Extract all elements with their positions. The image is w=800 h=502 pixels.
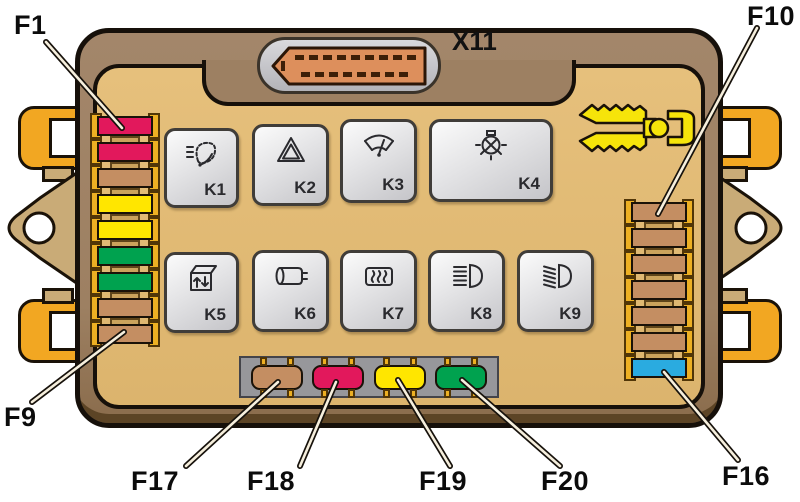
relay-label: K5 xyxy=(204,305,226,325)
bottom-fuse-2-crimson xyxy=(312,365,364,390)
fuse-pin xyxy=(471,389,478,398)
fuse-pin xyxy=(321,389,328,398)
relay-label: K2 xyxy=(294,178,316,198)
label-f1: F1 xyxy=(14,10,47,41)
fuse-pin xyxy=(348,357,355,366)
fuse-box-diagram: X11 K1K2K3K4K5K6K7K8K9 F1 F9 F10 F16 F17… xyxy=(0,0,800,502)
mount-step xyxy=(42,288,74,304)
mount-clip-bottom-right xyxy=(720,299,782,363)
fuse-tan xyxy=(631,228,687,248)
mount-hole xyxy=(736,213,766,243)
fuse-puller-icon xyxy=(576,99,701,157)
relay-label: K1 xyxy=(204,180,226,200)
connector-x11 xyxy=(257,37,441,94)
right-fuse-column xyxy=(624,202,694,384)
relay-k4: K4 xyxy=(429,119,553,202)
relay-k9: K9 xyxy=(517,250,594,332)
right-fuse-slot-3 xyxy=(624,254,694,274)
power-window-icon xyxy=(167,262,236,294)
high-beam-icon xyxy=(431,260,502,292)
hazard-warning-icon xyxy=(255,134,326,166)
bottom-fuse-1-tan xyxy=(251,365,303,390)
fuse-tan xyxy=(97,168,153,188)
left-fuse-slot-3 xyxy=(90,168,160,188)
fuse-pin xyxy=(260,357,267,366)
relay-k3: K3 xyxy=(340,119,417,203)
left-fuse-slot-2 xyxy=(90,142,160,162)
relay-k7: K7 xyxy=(340,250,417,332)
right-fuse-slot-7 xyxy=(624,358,694,378)
fuse-tan xyxy=(97,324,153,344)
label-f9: F9 xyxy=(4,402,37,433)
fuse-yellow xyxy=(97,220,153,240)
relay-label: K8 xyxy=(470,304,492,324)
fuse-tan xyxy=(631,280,687,300)
fuse-tan xyxy=(631,202,687,222)
fuse-green xyxy=(97,246,153,266)
horn-icon xyxy=(255,260,326,292)
relay-label: K4 xyxy=(518,174,540,194)
relay-k8: K8 xyxy=(428,250,505,332)
left-fuse-column xyxy=(90,116,160,350)
right-fuse-slot-6 xyxy=(624,332,694,352)
left-fuse-slot-7 xyxy=(90,272,160,292)
fuse-crimson xyxy=(97,142,153,162)
relay-k6: K6 xyxy=(252,250,329,332)
relay-label: K7 xyxy=(382,304,404,324)
right-fuse-slot-5 xyxy=(624,306,694,326)
mount-clip-top-left xyxy=(18,106,80,170)
bottom-fuse-row xyxy=(239,356,499,398)
label-f17: F17 xyxy=(131,466,179,497)
bottom-fuse-4-green xyxy=(435,365,487,390)
left-fuse-slot-6 xyxy=(90,246,160,266)
fuse-pin xyxy=(383,357,390,366)
fuse-pin xyxy=(260,389,267,398)
connector-x11-plug xyxy=(267,45,431,87)
label-f18: F18 xyxy=(247,466,295,497)
fuse-yellow xyxy=(97,194,153,214)
fuse-tan xyxy=(631,306,687,326)
heated-rear-window-icon xyxy=(343,260,414,292)
fuse-pin xyxy=(287,389,294,398)
bulb-check-icon xyxy=(432,129,550,161)
fuse-pin xyxy=(410,357,417,366)
label-f10: F10 xyxy=(747,1,795,32)
relay-label: K3 xyxy=(382,175,404,195)
windshield-wiper-icon xyxy=(343,129,414,161)
left-fuse-slot-1 xyxy=(90,116,160,136)
right-fuse-slot-2 xyxy=(624,228,694,248)
fuse-tan xyxy=(97,298,153,318)
label-f19: F19 xyxy=(419,466,467,497)
fuse-pin xyxy=(321,357,328,366)
bottom-fuse-3-yellow xyxy=(374,365,426,390)
headlight-washer-icon xyxy=(167,138,236,170)
left-fuse-slot-4 xyxy=(90,194,160,214)
low-beam-icon xyxy=(520,260,591,292)
fuse-pin xyxy=(287,357,294,366)
left-fuse-slot-8 xyxy=(90,298,160,318)
relay-label: K9 xyxy=(559,304,581,324)
mount-ear-left xyxy=(6,170,78,286)
connector-x11-label: X11 xyxy=(452,26,497,57)
fuse-pin xyxy=(410,389,417,398)
fuse-pin xyxy=(444,389,451,398)
fuse-tan xyxy=(631,332,687,352)
left-fuse-slot-5 xyxy=(90,220,160,240)
fuse-pin xyxy=(471,357,478,366)
label-f16: F16 xyxy=(722,461,770,492)
fuse-pin xyxy=(383,389,390,398)
mount-clip-top-right xyxy=(720,106,782,170)
left-fuse-slot-9 xyxy=(90,324,160,344)
relay-k5: K5 xyxy=(164,252,239,333)
fuse-blue xyxy=(631,358,687,378)
relay-k1: K1 xyxy=(164,128,239,208)
right-fuse-slot-4 xyxy=(624,280,694,300)
label-f20: F20 xyxy=(541,466,589,497)
mount-clip-bottom-left xyxy=(18,299,80,363)
relay-label: K6 xyxy=(294,304,316,324)
fuse-pin xyxy=(348,389,355,398)
fuse-pin xyxy=(444,357,451,366)
fuse-crimson xyxy=(97,116,153,136)
fuse-tan xyxy=(631,254,687,274)
relay-k2: K2 xyxy=(252,124,329,206)
mount-hole xyxy=(24,213,54,243)
fuse-green xyxy=(97,272,153,292)
right-fuse-slot-1 xyxy=(624,202,694,222)
